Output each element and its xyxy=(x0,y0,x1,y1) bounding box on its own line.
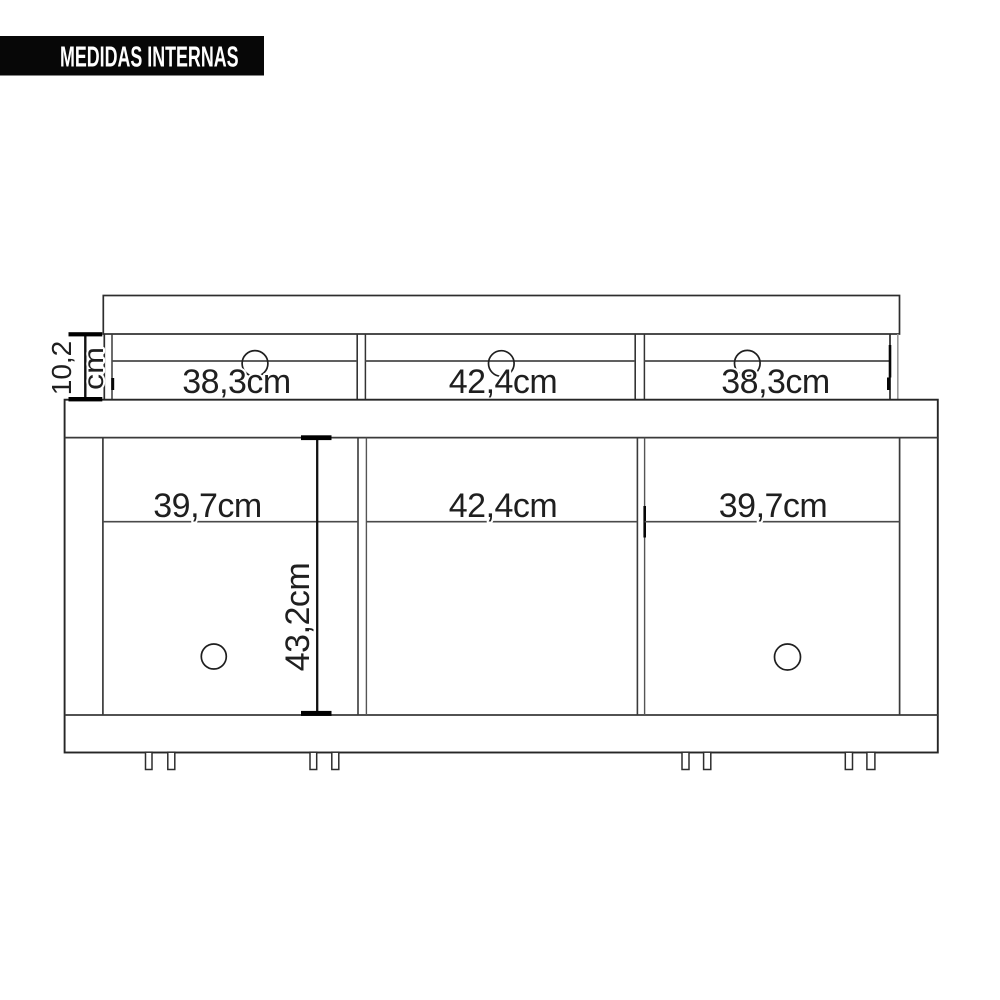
svg-text:38,3cm: 38,3cm xyxy=(721,363,830,401)
svg-text:MEDIDAS INTERNAS: MEDIDAS INTERNAS xyxy=(60,42,239,74)
svg-text:42,4cm: 42,4cm xyxy=(449,363,558,401)
svg-text:39,7cm: 39,7cm xyxy=(719,487,828,525)
svg-text:39,7cm: 39,7cm xyxy=(153,487,262,525)
svg-text:10,2: 10,2 xyxy=(46,341,77,396)
svg-text:42,4cm: 42,4cm xyxy=(449,487,558,525)
svg-text:43,2cm: 43,2cm xyxy=(279,563,317,672)
svg-text:cm: cm xyxy=(78,347,109,390)
svg-text:38,3cm: 38,3cm xyxy=(182,363,291,401)
